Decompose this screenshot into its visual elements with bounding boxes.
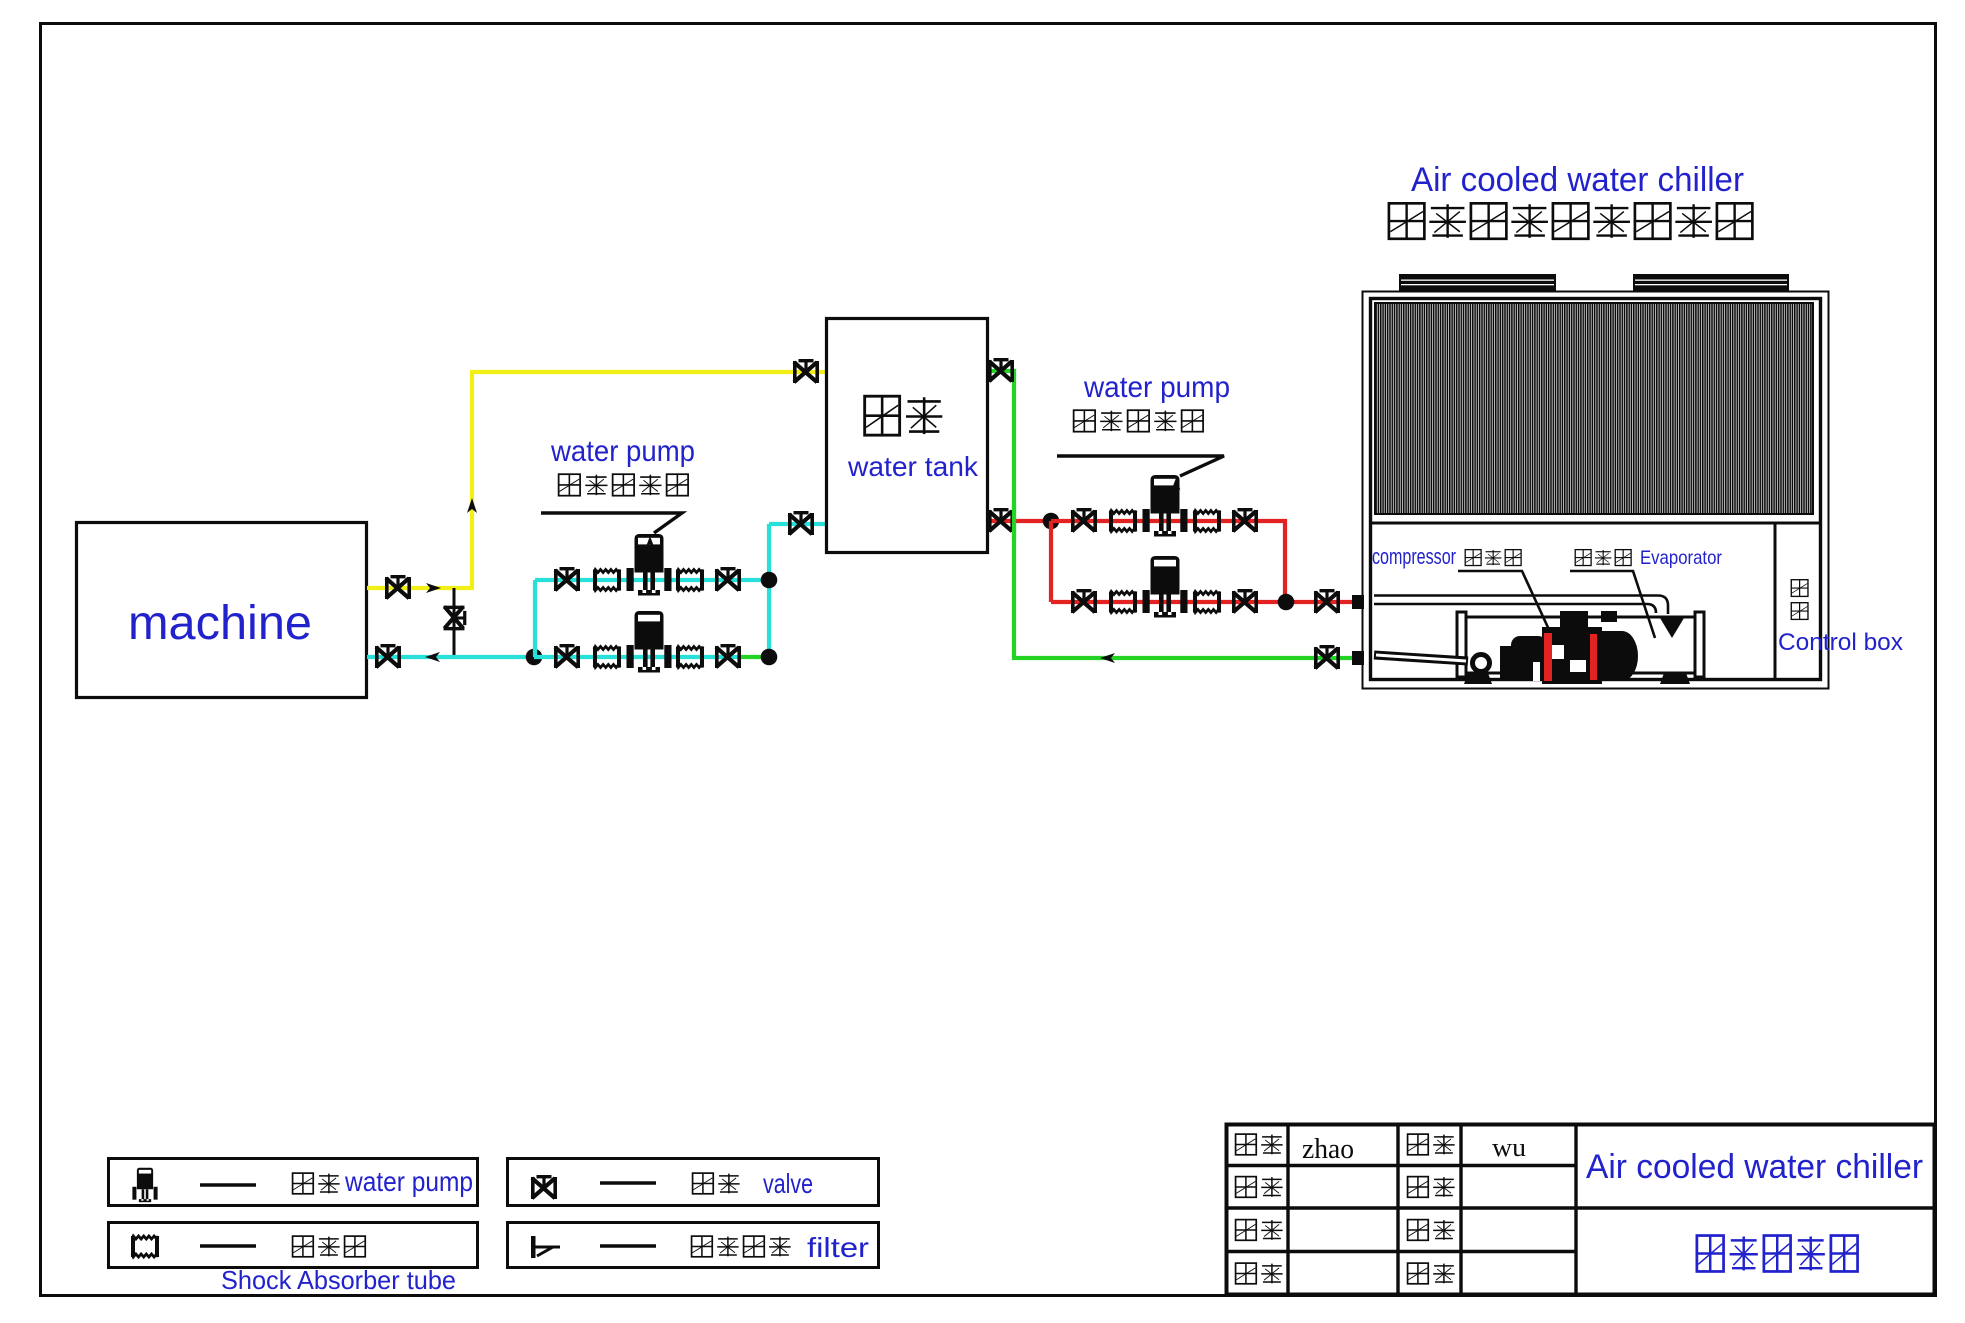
svg-text:Air cooled water chiller: Air cooled water chiller — [1586, 1148, 1923, 1186]
svg-text:water pump: water pump — [1083, 371, 1230, 404]
svg-text:machine: machine — [128, 597, 312, 650]
svg-text:Control box: Control box — [1778, 629, 1903, 656]
svg-text:water tank: water tank — [847, 451, 979, 482]
svg-text:water pump: water pump — [344, 1166, 473, 1197]
svg-text:Air cooled water chiller: Air cooled water chiller — [1411, 161, 1744, 199]
svg-text:compressor: compressor — [1372, 544, 1456, 569]
svg-text:filter: filter — [807, 1232, 869, 1263]
svg-text:Evaporator: Evaporator — [1640, 547, 1722, 569]
svg-text:wu: wu — [1492, 1133, 1526, 1162]
svg-text:valve: valve — [763, 1168, 813, 1199]
svg-text:zhao: zhao — [1302, 1134, 1354, 1165]
svg-text:water pump: water pump — [550, 435, 695, 468]
svg-text:Shock Absorber tube: Shock Absorber tube — [221, 1265, 456, 1295]
